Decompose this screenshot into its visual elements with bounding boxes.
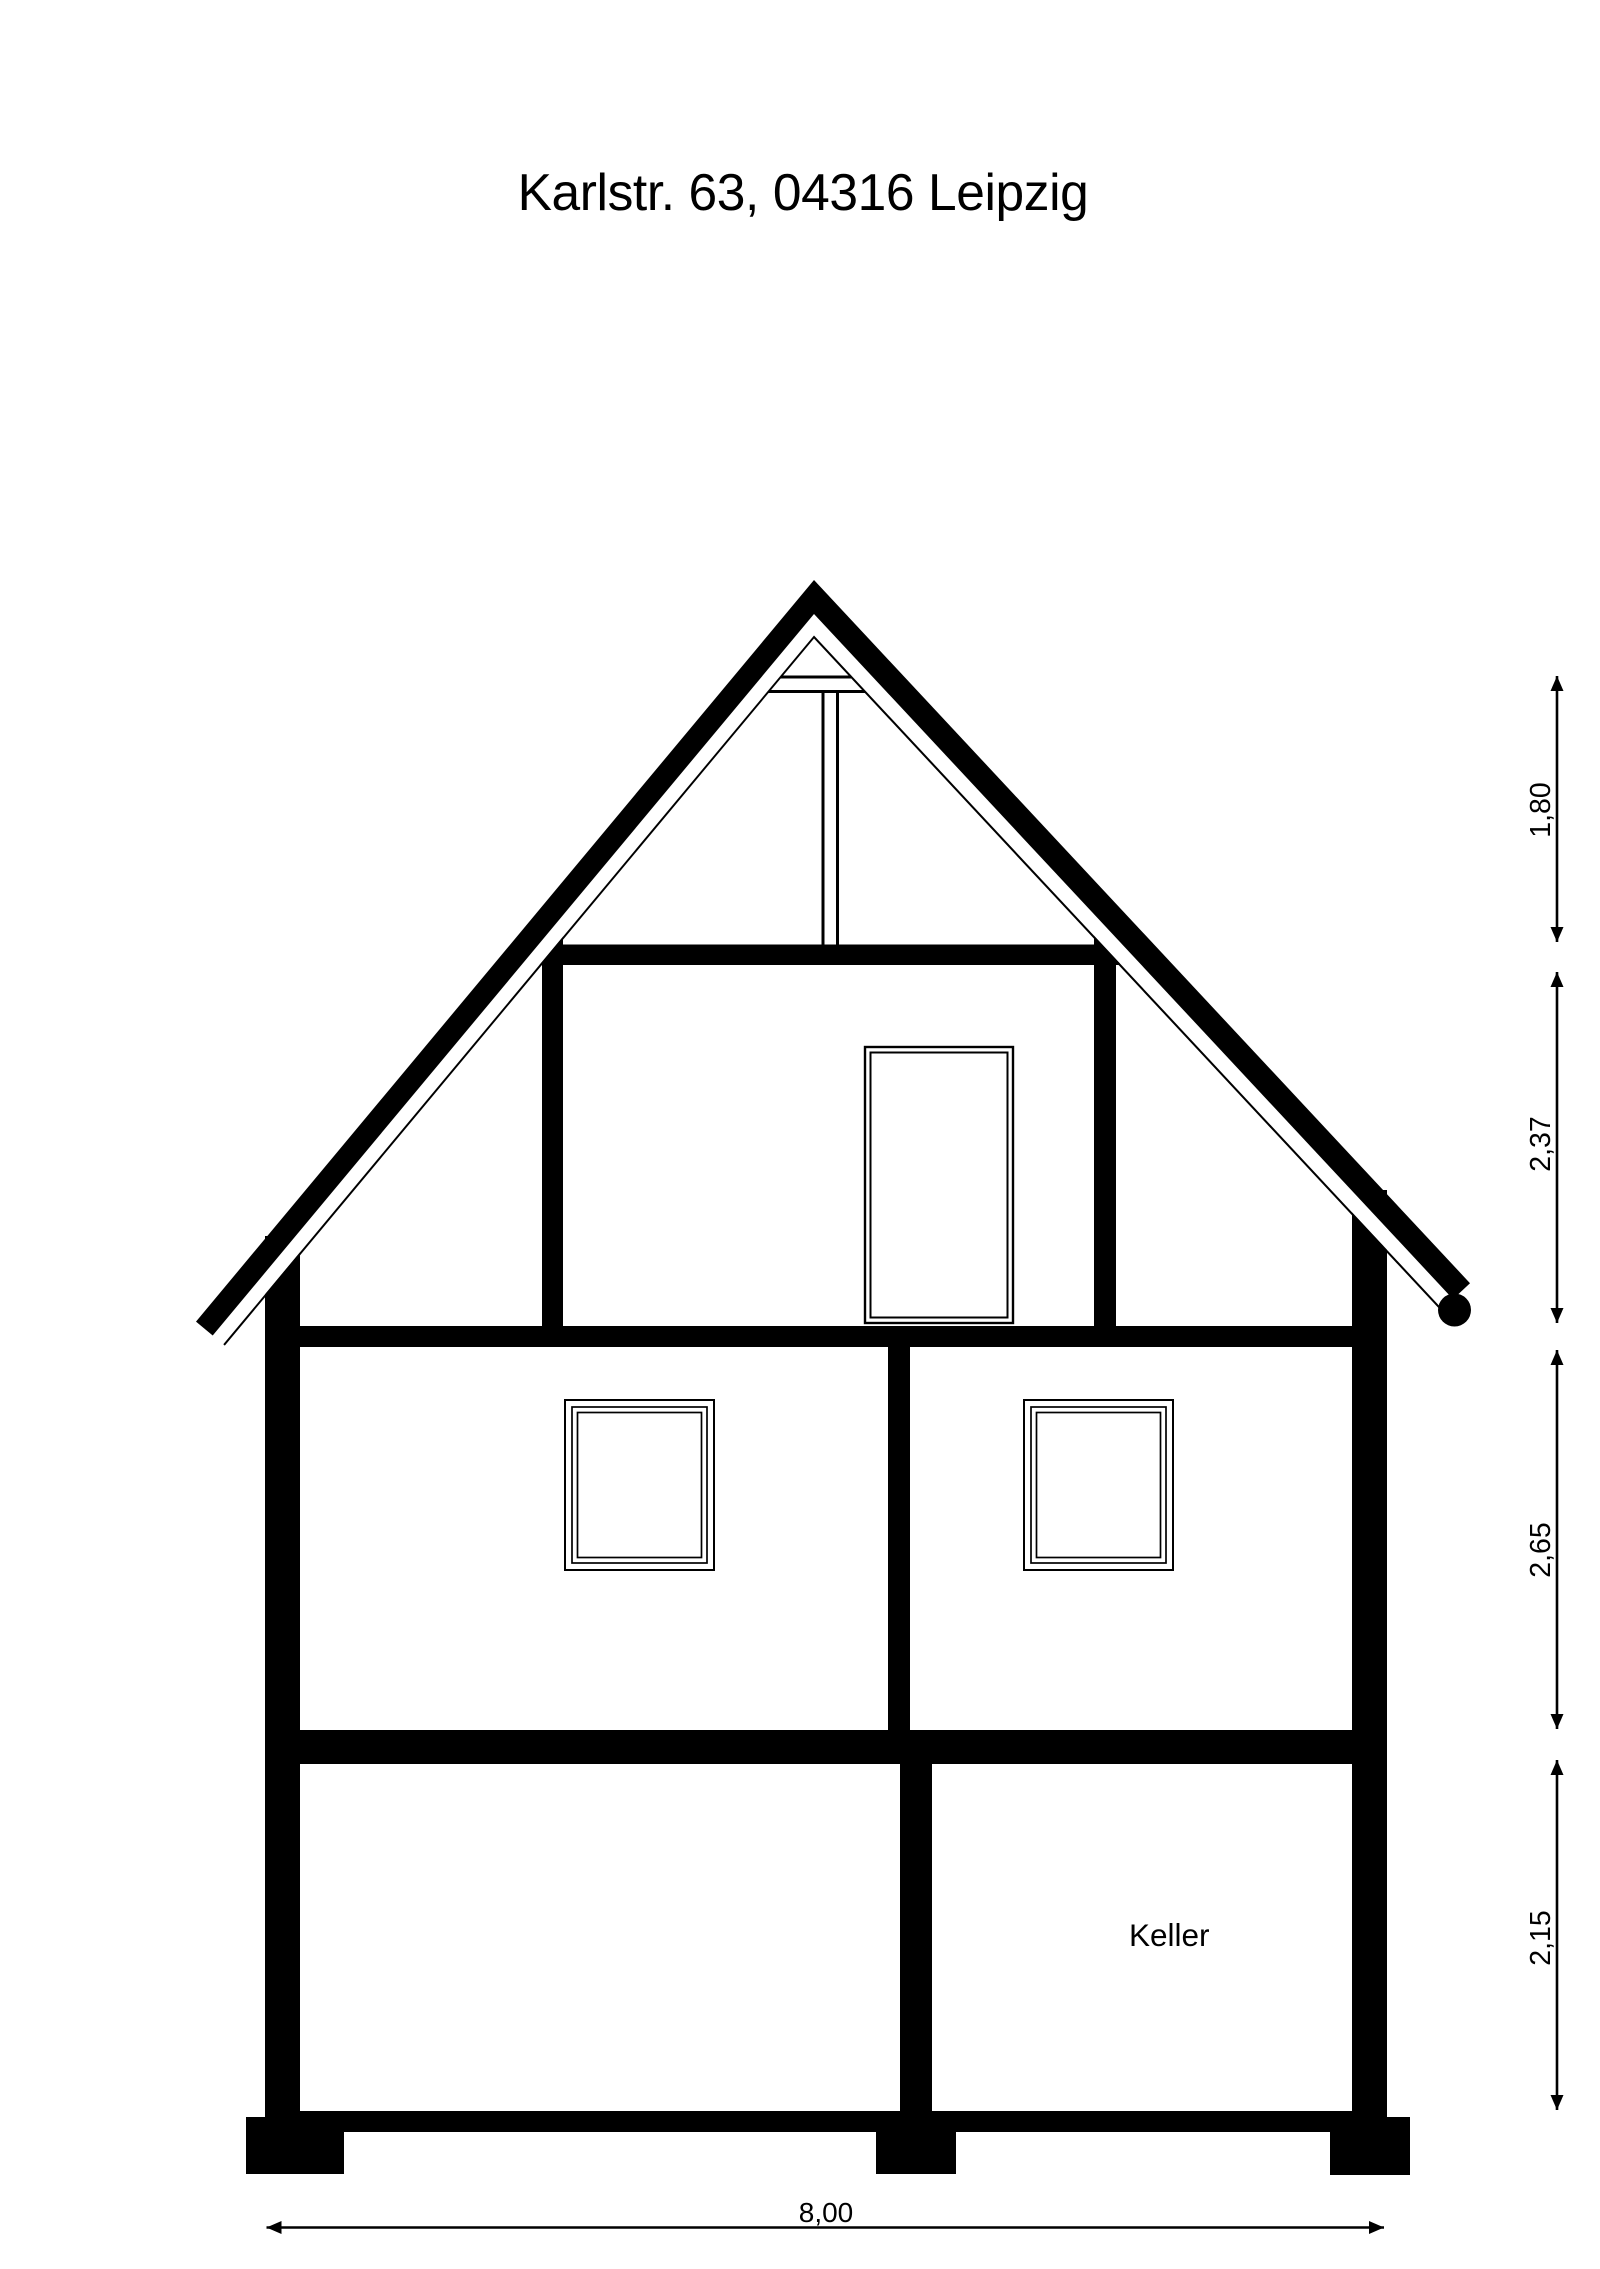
- svg-text:8,00: 8,00: [799, 2197, 854, 2228]
- svg-text:1,80: 1,80: [1525, 782, 1557, 837]
- svg-text:Keller: Keller: [1129, 1917, 1210, 1953]
- svg-text:2,37: 2,37: [1525, 1116, 1557, 1171]
- svg-text:2,65: 2,65: [1525, 1522, 1557, 1577]
- svg-text:2,15: 2,15: [1525, 1910, 1557, 1965]
- svg-text:Karlstr. 63, 04316 Leipzig: Karlstr. 63, 04316 Leipzig: [518, 163, 1089, 221]
